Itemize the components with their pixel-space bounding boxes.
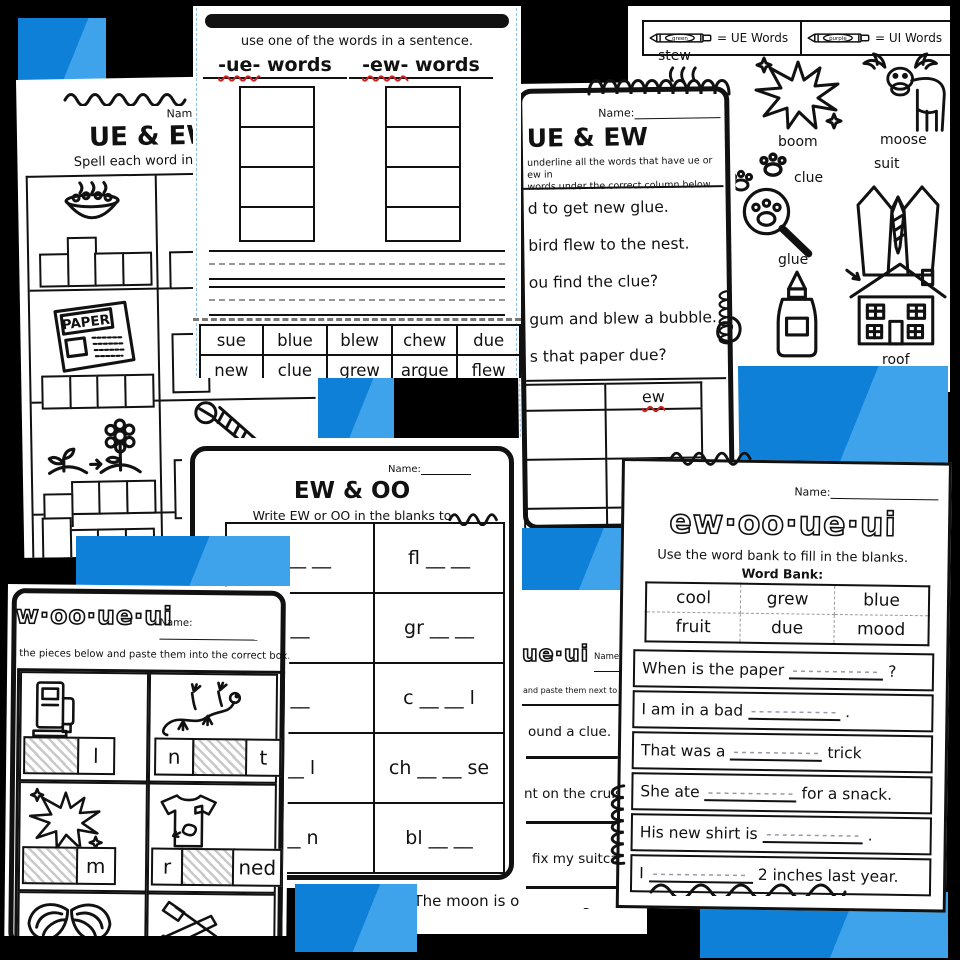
sentence-after: for a snack. xyxy=(801,785,892,804)
letter-box xyxy=(41,375,72,410)
picture-label-boom: boom xyxy=(778,134,818,150)
name-label: Name: xyxy=(388,464,421,475)
word-bank-label: Word Bank: xyxy=(623,564,941,583)
answer-blank xyxy=(704,784,796,802)
word: flew xyxy=(457,355,520,378)
name-field: Name: xyxy=(159,618,289,641)
paste-cell-newt: n t xyxy=(148,672,278,783)
name-field: Name: xyxy=(388,464,471,475)
spring-doodle xyxy=(585,74,735,98)
blank-word: ch __ __ se xyxy=(374,733,504,803)
name-label: Name: xyxy=(598,106,634,120)
word: blue xyxy=(263,325,328,355)
legend-label: = UE Words xyxy=(717,31,788,45)
paste-cell-ruined: r ned xyxy=(147,782,277,893)
paste-tile-hatched xyxy=(23,736,79,775)
bank-word: due xyxy=(740,613,834,644)
sentence-before: She ate xyxy=(640,782,699,801)
glue-bottle-icon xyxy=(762,268,832,360)
wave-doodle xyxy=(648,876,848,896)
gas-pump-icon xyxy=(21,677,84,740)
word: new xyxy=(200,355,263,378)
picture-label-moose: moose xyxy=(880,132,927,148)
picture-label-suit: suit xyxy=(874,156,900,172)
handwriting-lines xyxy=(209,286,505,316)
letter-boxes-stew xyxy=(39,236,150,288)
answer-blank xyxy=(789,662,883,680)
word: argue xyxy=(392,355,457,378)
word-bank-table: sue blue blew chew due new clue grew arg… xyxy=(199,324,521,378)
paste-cell-fuel: l xyxy=(19,671,149,782)
letter-box xyxy=(94,252,125,287)
bank-word: blue xyxy=(834,585,929,616)
paw-print-icon xyxy=(756,150,790,180)
paste-grid: l n t m xyxy=(14,668,285,953)
letter-tile: n xyxy=(154,738,194,776)
picture-label-stew: stew xyxy=(658,48,691,64)
newspaper-icon: PAPER xyxy=(46,298,143,374)
sentence-after: ? xyxy=(888,663,896,681)
blank-word: gr __ __ xyxy=(374,593,504,663)
page-subtitle: Use the word bank to fill in the blanks. xyxy=(624,547,942,566)
snail-spiral-doodle xyxy=(716,316,744,346)
blue-deco-bottom-center xyxy=(295,884,417,952)
word: sue xyxy=(200,325,263,355)
blue-deco-right xyxy=(733,366,948,466)
letter-box xyxy=(122,252,153,287)
tile-row: r ned xyxy=(151,848,280,887)
svg-text:purple: purple xyxy=(829,36,847,42)
bank-word: mood xyxy=(834,614,929,645)
instruction: use one of the words in a sentence. xyxy=(193,34,521,49)
page-sort-ue-ew: use one of the words in a sentence. -ue-… xyxy=(193,6,521,378)
row-line xyxy=(387,168,459,208)
word: due xyxy=(457,325,520,355)
bank-word: grew xyxy=(740,584,834,615)
dashed-cut-line xyxy=(193,318,521,321)
legend-box-ui: purple = UI Words xyxy=(800,20,950,56)
shirt-stain-icon xyxy=(149,788,228,853)
column-header-ew: ew xyxy=(642,386,665,405)
row-line xyxy=(241,168,313,208)
bank-word: cool xyxy=(646,582,741,613)
name-line xyxy=(830,488,938,501)
fill-in-sentence: That was atrick xyxy=(632,731,934,773)
word: blew xyxy=(327,325,392,355)
name-field: Name: xyxy=(598,105,720,120)
letter-box xyxy=(39,253,70,288)
purple-crayon-icon: purple xyxy=(806,28,872,48)
squiggle-doodle xyxy=(447,506,503,526)
blue-deco-bottom-left xyxy=(76,536,290,586)
letter-tile: m xyxy=(75,847,115,885)
coil-doodle xyxy=(606,782,630,867)
gecko-icon xyxy=(150,681,251,738)
blank-word: bl __ __ xyxy=(374,803,504,873)
name-label: Name: xyxy=(160,618,193,629)
ew-word-box xyxy=(385,86,461,242)
page-title: UE & EW xyxy=(527,122,649,153)
answer-blank xyxy=(730,743,822,761)
name-line xyxy=(634,107,720,119)
row-line xyxy=(241,88,313,128)
row-line xyxy=(241,128,313,168)
sentence: d to get new glue. xyxy=(528,198,669,218)
letter-box xyxy=(124,374,155,409)
sentence-before: That was a xyxy=(641,741,726,760)
bank-word: fruit xyxy=(645,612,740,643)
name-label: Name xyxy=(594,652,619,662)
green-crayon-icon: green xyxy=(648,28,714,48)
word: clue xyxy=(263,355,328,378)
worksheet-collage: green = UE Words purple = UI Words stew … xyxy=(0,0,960,960)
blank-word: fl __ __ xyxy=(374,523,504,593)
page-title: EW & OO xyxy=(182,478,522,504)
sentence-before: I xyxy=(639,864,644,882)
sentence-before: When is the paper xyxy=(642,659,784,679)
fill-in-sentence: When is the paper? xyxy=(633,649,935,691)
letter-boxes-news xyxy=(41,374,152,410)
letter-box xyxy=(69,375,100,410)
letter-tile: t xyxy=(245,738,281,776)
tile-row: m xyxy=(22,846,114,885)
sentence: ou find the clue? xyxy=(529,272,659,292)
letter-tile: l xyxy=(77,737,115,775)
instruction-line: underline all the words that have ue or … xyxy=(527,155,723,182)
letter-box-tall xyxy=(66,237,97,288)
fill-in-sentence: I am in a bad. xyxy=(632,690,934,732)
answer-blank xyxy=(748,702,840,720)
word: grew xyxy=(327,355,392,378)
boom-burst-icon xyxy=(22,787,109,852)
sentence-after: trick xyxy=(827,744,862,762)
paste-tile-hatched xyxy=(192,738,248,777)
sentence-after: . xyxy=(845,703,850,721)
sentence: gum and blew a bubble. xyxy=(529,308,717,329)
letter-tile: r xyxy=(151,848,183,886)
sentence-before: I am in a bad xyxy=(641,700,743,719)
name-line xyxy=(421,464,471,475)
house-roof-icon xyxy=(844,256,950,350)
fill-in-sentence: His new shirt is. xyxy=(631,813,933,855)
legend-label: = UI Words xyxy=(875,31,942,45)
letter-box xyxy=(98,480,129,515)
name-line xyxy=(159,629,257,641)
fill-in-sentence: She atefor a snack. xyxy=(631,772,933,814)
row-line xyxy=(387,88,459,128)
squiggle-doodle xyxy=(62,86,192,106)
squiggle-doodle xyxy=(668,444,753,466)
page-title-fragment: ue·ui xyxy=(522,642,589,667)
letter-box xyxy=(42,517,73,558)
moose-icon xyxy=(854,52,950,136)
row-line xyxy=(387,128,459,168)
page-title: ew·oo·ue·ui xyxy=(624,501,943,544)
column-header-ew: -ew- words xyxy=(349,54,493,79)
picture-label-glue: glue xyxy=(778,252,808,268)
sentence-fragment: ound a clue. xyxy=(528,724,611,740)
page-word-bank: Name: ew·oo·ue·ui Use the word bank to f… xyxy=(616,458,952,913)
instruction-fragment: and paste them next to th xyxy=(523,686,628,695)
page-cut-box: w·oo·ue·ui Name: the pieces below and pa… xyxy=(4,584,290,953)
letter-boxes-grew xyxy=(43,480,154,516)
page-title-fragment: w·oo·ue·ui xyxy=(16,600,173,631)
word: chew xyxy=(392,325,457,355)
boom-burst-icon xyxy=(746,56,850,132)
sentence-before: His new shirt is xyxy=(640,823,758,843)
words-part: words xyxy=(260,54,332,76)
letter-box xyxy=(96,374,127,409)
words-part: words xyxy=(408,54,480,76)
sentence: bird flew to the nest. xyxy=(528,235,689,255)
sentence-after: . xyxy=(868,826,873,844)
tile-row: n t xyxy=(154,738,279,777)
letter-box xyxy=(71,481,102,516)
stew-bowl-icon xyxy=(56,180,129,233)
column-header-ue: -ue- words xyxy=(203,54,347,79)
letter-box xyxy=(126,480,157,515)
ue-part: -ue- xyxy=(218,54,260,76)
ew-part: -ew- xyxy=(362,54,408,76)
paste-tile-hatched xyxy=(22,846,78,885)
name-field: Name: xyxy=(794,485,938,500)
word-bank-box: cool grew blue fruit due mood xyxy=(644,581,930,646)
frame-top-bar xyxy=(205,14,509,28)
handwriting-lines xyxy=(209,250,505,280)
answer-blank xyxy=(763,826,863,844)
sentence: s that paper due? xyxy=(530,346,667,366)
paste-cell-boom: m xyxy=(18,781,148,892)
ue-word-box xyxy=(239,86,315,242)
flower-grow-icon xyxy=(44,408,145,478)
tile-row: l xyxy=(23,736,113,775)
svg-text:green: green xyxy=(672,36,688,42)
paste-tile-hatched xyxy=(180,848,234,887)
name-label: Name: xyxy=(794,485,830,499)
letter-tile: ned xyxy=(232,848,282,887)
magnifier-paw-icon xyxy=(732,180,822,260)
blank-word: c __ __ l xyxy=(374,663,504,733)
